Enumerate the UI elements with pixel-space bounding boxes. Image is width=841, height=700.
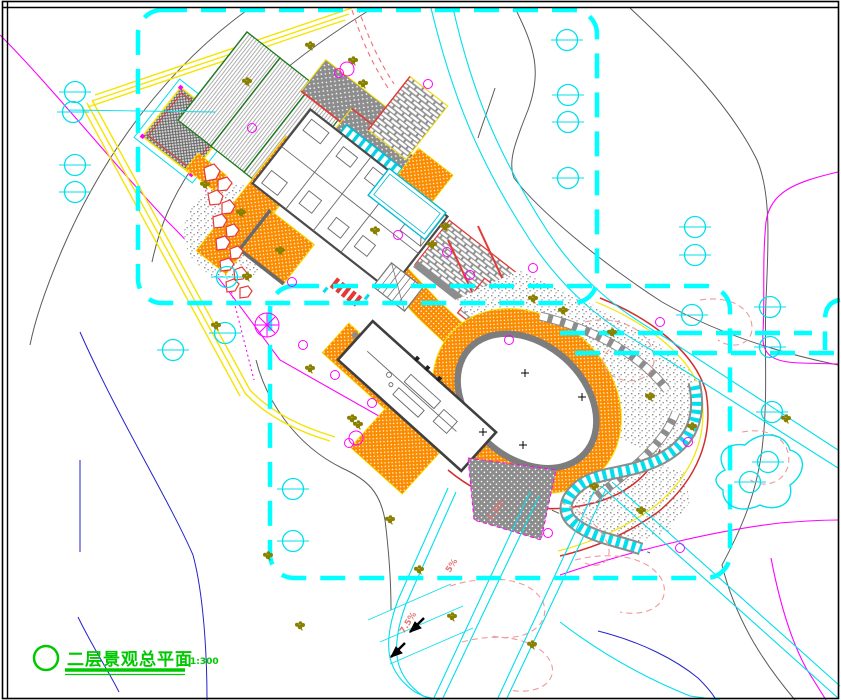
title-block: 二层景观总平面 1:300 [34, 646, 219, 675]
survey-line [771, 558, 826, 700]
dark-gravel-triangle [468, 458, 556, 540]
road-edge [433, 492, 530, 700]
existing-tree-icon [277, 479, 309, 500]
road-edge [601, 486, 838, 698]
existing-tree-icon [752, 452, 784, 473]
slope-label: 5% [444, 557, 460, 575]
red-dashed-line [352, 10, 388, 88]
existing-tree-icon [679, 217, 711, 238]
drawing-title: 二层景观总平面 [67, 649, 193, 670]
existing-tree-icon [59, 82, 91, 103]
drawing-scale: 1:300 [190, 657, 219, 667]
cad-canvas: 7.5% 5% 7.5% 二层景观总平面 1:300 [0, 0, 841, 700]
existing-tree-icon [157, 340, 189, 361]
road-edge [389, 488, 448, 700]
existing-tree-icon [551, 30, 583, 51]
existing-tree-icon [552, 112, 584, 133]
contour-line [598, 631, 716, 700]
road-edge [442, 496, 539, 700]
slope-step-markers [322, 271, 370, 316]
parking-bay-lines [368, 584, 473, 664]
title-bubble-icon [34, 646, 58, 670]
existing-tree-icon [552, 85, 584, 106]
site-plan-drawing: 7.5% 5% 7.5% 二层景观总平面 1:300 [0, 0, 841, 700]
road-edge [560, 622, 720, 700]
red-dashed-line [358, 8, 394, 84]
spoke-tree-icon [255, 313, 279, 337]
existing-tree-icon [679, 245, 711, 266]
existing-tree-icon [277, 531, 309, 552]
existing-tree-icon [734, 472, 766, 493]
existing-tree-icon [552, 168, 584, 189]
red-dashed-road [352, 8, 394, 88]
existing-tree-icon [57, 102, 89, 123]
existing-tree-icon [59, 155, 91, 176]
contour-line [80, 332, 207, 700]
existing-tree-icon [754, 297, 786, 318]
lower-building-plaza [322, 270, 708, 556]
road-edge [612, 482, 840, 686]
contour-line [256, 360, 391, 610]
